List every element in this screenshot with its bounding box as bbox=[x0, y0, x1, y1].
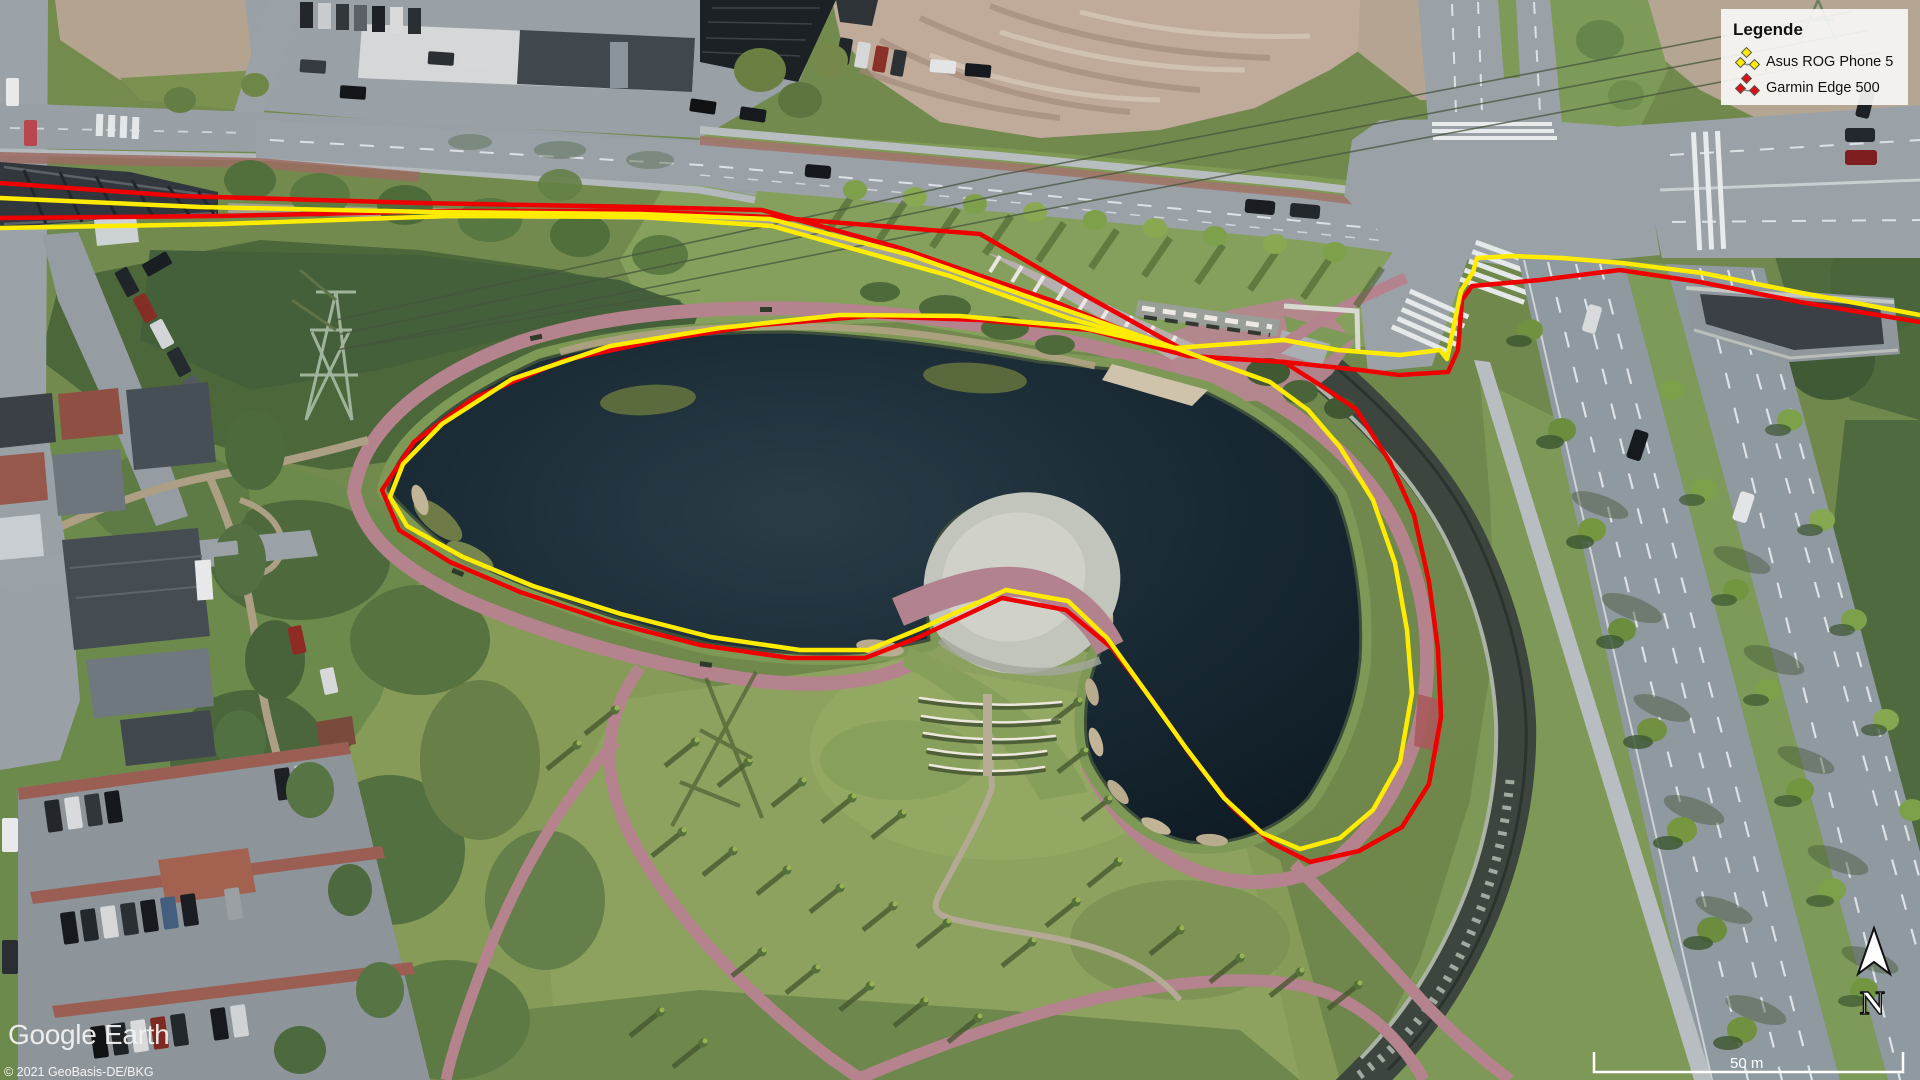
svg-text:Google Earth: Google Earth bbox=[8, 1019, 169, 1050]
svg-text:© 2021 GeoBasis-DE/BKG: © 2021 GeoBasis-DE/BKG bbox=[4, 1065, 154, 1079]
svg-text:Asus ROG Phone 5: Asus ROG Phone 5 bbox=[1766, 54, 1893, 70]
svg-text:N: N bbox=[1860, 985, 1885, 1022]
svg-text:50 m: 50 m bbox=[1730, 1055, 1763, 1072]
svg-text:Legende: Legende bbox=[1733, 20, 1803, 39]
svg-text:Garmin Edge 500: Garmin Edge 500 bbox=[1766, 80, 1880, 96]
